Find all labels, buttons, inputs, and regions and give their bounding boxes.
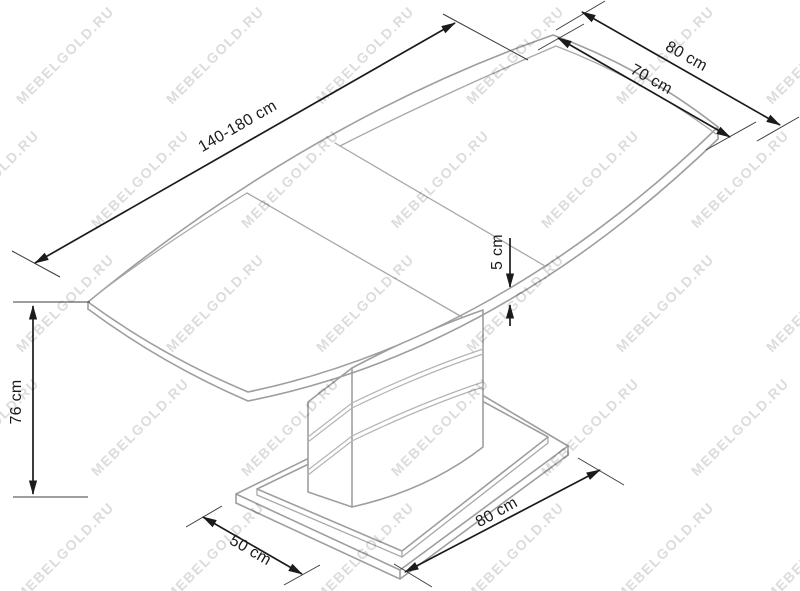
dimension-labels: 140-180 cm 80 cm 70 cm 5 cm 76 cm 50 cm … bbox=[0, 0, 800, 591]
dim-label-top-width-outer: 80 cm bbox=[662, 38, 710, 76]
dim-label-top-width-inner: 70 cm bbox=[627, 61, 675, 99]
dimension-drawing-page: 140-180 cm 80 cm 70 cm 5 cm 76 cm 50 cm … bbox=[0, 0, 800, 591]
dim-label-length: 140-180 cm bbox=[196, 97, 281, 156]
dim-label-top-thickness: 5 cm bbox=[489, 234, 507, 270]
dim-label-height: 76 cm bbox=[8, 379, 26, 424]
dim-label-base-length: 80 cm bbox=[473, 494, 521, 532]
dim-label-base-depth: 50 cm bbox=[226, 532, 274, 570]
